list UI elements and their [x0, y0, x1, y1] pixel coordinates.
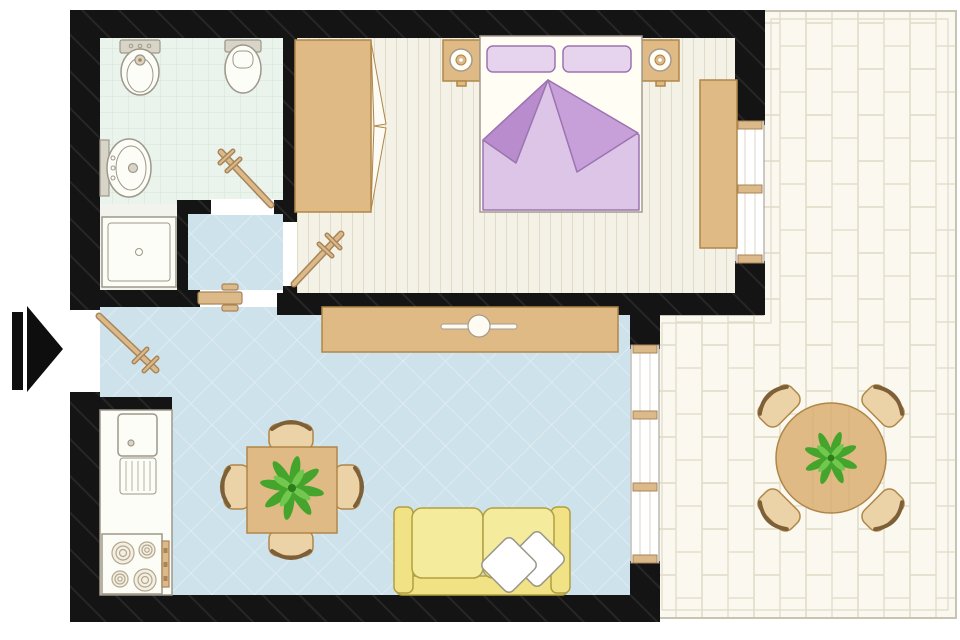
sofa-armrest-left	[394, 507, 413, 593]
pillow-right	[563, 46, 631, 72]
dining-chair	[334, 465, 362, 509]
wall-left-lower	[70, 392, 100, 622]
sideboard-knob	[468, 315, 490, 337]
wall-left-upper	[70, 10, 100, 310]
wall-top	[70, 10, 765, 38]
floor-plan-svg	[0, 0, 960, 640]
sideboard	[322, 307, 618, 352]
floor-plan	[0, 0, 960, 640]
wall-hallway-bottom	[100, 290, 200, 307]
hallway-floor	[188, 204, 283, 290]
wall-bottom	[70, 595, 660, 622]
wall-bathroom-bottom-right	[274, 200, 297, 214]
toilet	[225, 40, 261, 93]
wall-living-right-upper	[630, 293, 660, 349]
wall-shower-hallway	[177, 214, 188, 292]
wall-kitchen-stub	[83, 397, 172, 411]
bidet	[120, 40, 160, 95]
dining-chair	[269, 422, 313, 450]
living-room-window	[631, 345, 659, 563]
wall-hallway-bedroom-stub	[283, 286, 297, 296]
wall-right-bedroom-upper	[735, 10, 765, 125]
entry-doorway	[70, 310, 100, 392]
nightstand-right	[642, 40, 679, 86]
pillow-left	[487, 46, 555, 72]
dresser	[700, 80, 737, 248]
sofa-cushion	[412, 508, 483, 578]
sofa	[394, 507, 570, 595]
wash-basin	[100, 139, 151, 197]
bedroom-doorway	[283, 222, 297, 286]
dining-chair	[222, 465, 250, 509]
bedroom-window	[736, 121, 764, 263]
shower-tray	[102, 217, 176, 287]
kitchen	[100, 410, 172, 595]
stove	[102, 534, 169, 594]
double-bed	[480, 36, 642, 212]
entry-arrow-icon	[12, 306, 63, 392]
dining-chair	[269, 530, 313, 558]
nightstand-left	[443, 40, 480, 86]
wall-bathroom-bottom-left	[177, 200, 211, 214]
kitchen-sink	[118, 414, 157, 456]
